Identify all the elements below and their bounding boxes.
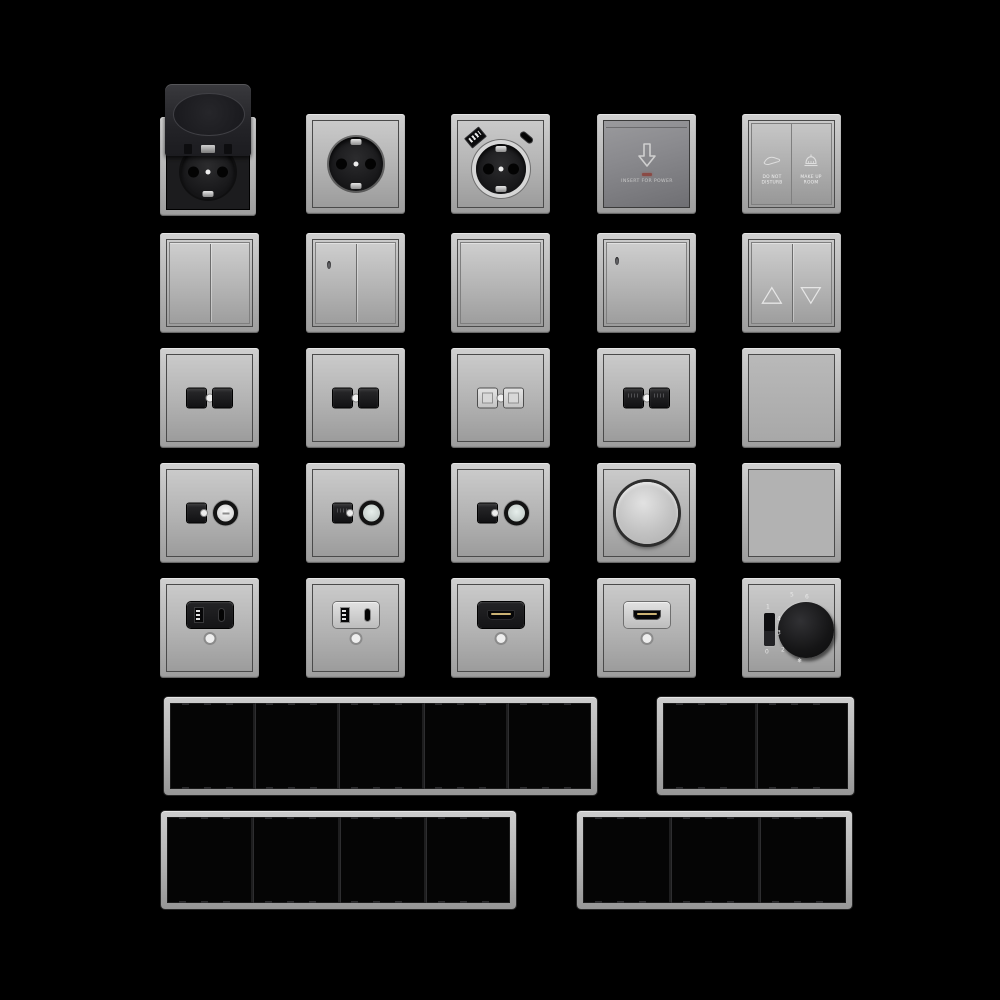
tv-data-outlet-c	[451, 463, 550, 563]
hinged-lid-open	[165, 84, 251, 156]
frame-opening	[663, 703, 755, 789]
product-grid-canvas: INSERT FOR POWER DO NOTDISTURB	[0, 0, 1000, 1000]
frame-opening	[170, 703, 253, 789]
socket-schuko-usb	[451, 114, 550, 214]
dimmer-knob	[616, 482, 678, 544]
make-up-room-button: MAKE UPROOM	[791, 123, 833, 205]
outlet-plate	[166, 354, 253, 442]
rocker-switch-2gang-led	[306, 233, 405, 333]
rocker-switch-2gang	[160, 233, 259, 333]
indicator-led	[615, 257, 619, 265]
frame-2gang	[657, 697, 854, 795]
lid-latch	[201, 145, 215, 153]
socket-plate	[457, 120, 544, 208]
center-dot	[642, 634, 651, 643]
hdmi-module	[478, 602, 524, 628]
blank-cover-a	[742, 348, 841, 448]
thermostat: 1 0 5 6 4 3 2 ❄	[742, 578, 841, 678]
data-jack-right	[359, 389, 378, 408]
on-off-slider	[764, 613, 775, 646]
switch-frame	[748, 239, 835, 327]
insert-card-arrow-icon	[635, 142, 659, 168]
rocker-divider	[210, 244, 211, 322]
outlet-plate	[166, 584, 253, 672]
coax-slot	[222, 512, 229, 514]
data-jack-left-shuttered	[478, 389, 497, 408]
card-switch-button: INSERT FOR POWER	[603, 120, 690, 208]
outlet-plate	[603, 354, 690, 442]
outlet-plate	[312, 469, 399, 557]
usb-charger-black	[160, 578, 259, 678]
switch-frame	[603, 239, 690, 327]
hdmi-outlet-light	[597, 578, 696, 678]
scale-mark-6: 6	[805, 594, 809, 601]
usb-a-port-icon	[194, 607, 204, 623]
socket-center-dot	[353, 162, 358, 167]
frame-3gang	[577, 811, 852, 909]
thermostat-plate: 1 0 5 6 4 3 2 ❄	[748, 584, 835, 672]
hdmi-module	[624, 602, 670, 628]
center-screw-dot	[206, 395, 213, 402]
card-switch-led	[642, 173, 652, 176]
center-dot	[347, 510, 353, 516]
blank-cover-b	[742, 463, 841, 563]
slider-on-mark: 1	[766, 604, 770, 611]
card-switch-label: INSERT FOR POWER	[607, 178, 686, 183]
dimmer-plate	[603, 469, 690, 557]
scale-mark-2: 2	[781, 647, 785, 654]
socket-center-dot	[498, 167, 503, 172]
frame-opening	[338, 817, 424, 903]
scale-mark-4: 4	[777, 616, 781, 623]
data-jack-right	[213, 389, 232, 408]
coax-connector	[504, 501, 529, 526]
tv-data-outlet-a	[160, 463, 259, 563]
outlet-plate	[312, 584, 399, 672]
outlet-plate	[457, 354, 544, 442]
hdmi-outlet-black	[451, 578, 550, 678]
do-not-disturb-button: DO NOTDISTURB	[751, 123, 793, 205]
blind-switch	[742, 233, 841, 333]
frame-opening	[583, 817, 669, 903]
frame-opening	[506, 703, 591, 789]
center-dot	[351, 634, 360, 643]
double-rocker	[315, 242, 396, 324]
usb-charger-module	[333, 602, 379, 628]
coax-connector	[359, 501, 384, 526]
data-jack-left	[333, 389, 352, 408]
usb-charger-module	[187, 602, 233, 628]
slider-off-mark: 0	[765, 649, 769, 656]
outlet-plate	[166, 469, 253, 557]
thermostat-knob	[778, 602, 834, 658]
center-screw-dot	[643, 395, 650, 402]
usb-charger-light	[306, 578, 405, 678]
frame-opening	[167, 817, 251, 903]
service-bell-icon	[803, 153, 819, 168]
data-outlet-c	[451, 348, 550, 448]
scale-mark-3: 3	[777, 630, 781, 637]
frame-opening	[424, 817, 510, 903]
frame-2gang-openings	[663, 703, 848, 789]
frame-opening	[758, 817, 846, 903]
center-dot	[205, 634, 214, 643]
frost-protection-icon: ❄	[797, 658, 802, 665]
data-outlet-b	[306, 348, 405, 448]
usb-c-port-icon	[520, 131, 533, 143]
tv-data-outlet-b	[306, 463, 405, 563]
rotary-dimmer	[597, 463, 696, 563]
blind-plate	[748, 469, 835, 557]
frame-opening	[251, 817, 337, 903]
lid-hinge-left	[184, 144, 192, 154]
rocker-switch-1gang	[451, 233, 550, 333]
hdmi-port-icon	[487, 610, 515, 620]
single-rocker	[460, 242, 541, 324]
ground-clip-bottom	[203, 191, 214, 197]
make-up-room-label: MAKE UPROOM	[792, 174, 831, 185]
center-dot	[492, 510, 498, 516]
rocker-divider	[792, 244, 793, 322]
frame-opening	[422, 703, 507, 789]
switch-frame	[457, 239, 544, 327]
lid-hinge-right	[224, 144, 232, 154]
usb-c-port-icon	[365, 609, 370, 621]
switch-frame	[166, 239, 253, 327]
service-switch: DO NOTDISTURB MAKE UPROOM	[742, 114, 841, 214]
frame-3gang-openings	[583, 817, 846, 903]
frame-opening	[337, 703, 422, 789]
key-card-switch: INSERT FOR POWER	[597, 114, 696, 214]
data-outlet-a	[160, 348, 259, 448]
center-screw-dot	[497, 395, 504, 402]
outlet-plate	[312, 354, 399, 442]
schuko-socket	[329, 137, 383, 191]
switch-frame	[312, 239, 399, 327]
outlet-plate	[603, 584, 690, 672]
down-arrow-icon	[799, 285, 823, 306]
rocker-switch-1gang-led	[597, 233, 696, 333]
service-switch-plate: DO NOTDISTURB MAKE UPROOM	[748, 120, 835, 208]
single-rocker	[606, 242, 687, 324]
socket-flip-lid	[160, 117, 256, 216]
frame-opening	[669, 817, 757, 903]
blind-plate	[748, 354, 835, 442]
usb-a-port-icon	[340, 607, 350, 623]
frame-opening	[253, 703, 338, 789]
frame-5gang-openings	[170, 703, 591, 789]
outlet-plate	[457, 469, 544, 557]
frame-5gang	[164, 697, 597, 795]
hdmi-port-icon	[633, 610, 661, 620]
frame-opening	[755, 703, 849, 789]
data-jack-left	[624, 389, 643, 408]
frame-4gang	[161, 811, 516, 909]
usb-c-port-icon	[219, 609, 224, 621]
outlet-plate	[457, 584, 544, 672]
double-rocker	[169, 242, 250, 324]
data-outlet-d	[597, 348, 696, 448]
rocker-divider	[356, 244, 357, 322]
socket-schuko	[306, 114, 405, 214]
usb-a-port-icon	[464, 126, 487, 148]
ground-clip-bottom	[350, 183, 361, 189]
do-not-disturb-label: DO NOTDISTURB	[752, 174, 791, 185]
up-arrow-icon	[760, 285, 784, 306]
schuko-socket	[476, 144, 526, 194]
socket-center-dot	[206, 169, 211, 174]
data-jack-right-shuttered	[504, 389, 523, 408]
lid-inner-oval	[173, 93, 246, 137]
data-jack-right	[650, 389, 669, 408]
frame-4gang-openings	[167, 817, 510, 903]
ground-clip-bottom	[495, 186, 506, 192]
indicator-led	[327, 261, 331, 269]
center-screw-dot	[352, 395, 359, 402]
center-dot	[201, 510, 207, 516]
hand-icon	[761, 154, 783, 168]
ground-clip-top	[495, 146, 506, 152]
ground-clip-top	[350, 139, 361, 145]
socket-plate	[312, 120, 399, 208]
scale-mark-5: 5	[790, 592, 794, 599]
coax-connector	[213, 501, 238, 526]
double-rocker	[751, 242, 832, 324]
data-jack-left	[187, 389, 206, 408]
center-dot	[496, 634, 505, 643]
